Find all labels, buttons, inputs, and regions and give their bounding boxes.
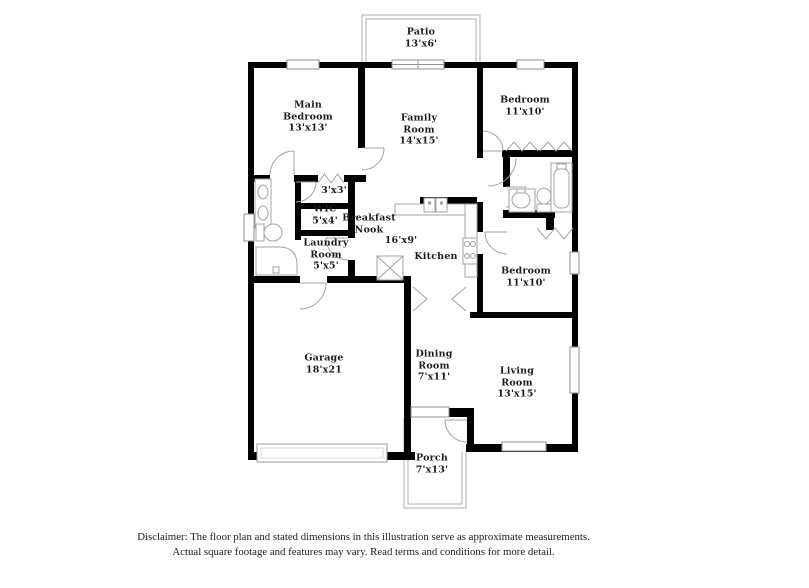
room-label-main-bedroom: Main Bedroom 13'x13' [280,100,336,135]
room-label-living: Living Room 13'x15' [495,366,539,401]
room-label-bedroom-top: Bedroom 11'x10' [490,94,560,117]
room-label-closet: 3'x3' [314,185,354,197]
floor-plan-page: Patio 13'x6' Main Bedroom 13'x13' Family… [0,0,809,588]
room-label-dining: Dining Room 7'x11' [411,349,457,384]
cased-opening-chevrons [413,287,466,311]
disclaimer-text: Disclaimer: The floor plan and stated di… [0,530,727,560]
room-label-kitchen: Kitchen [406,251,466,263]
garage-door [257,444,387,462]
room-label-family-room: Family Room 14'x15' [395,113,443,148]
room-label-porch: Porch 7'x13' [407,452,457,475]
kitchen-dims-label: 16'x9' [376,235,426,247]
room-label-bedroom-right: Bedroom 11'x10' [491,265,561,288]
floor-plan-drawing [0,0,809,588]
room-label-breakfast-nook: Breakfast Nook [339,212,399,235]
room-label-laundry: Laundry Room 5'x5' [300,238,352,273]
room-label-garage: Garage 18'x21 [289,352,359,375]
disclaimer-line-1: Disclaimer: The floor plan and stated di… [0,530,727,545]
room-label-patio: Patio 13'x6' [386,26,456,49]
main-bath-fixtures [255,179,297,275]
disclaimer-line-2: Actual square footage and features may v… [0,545,727,560]
